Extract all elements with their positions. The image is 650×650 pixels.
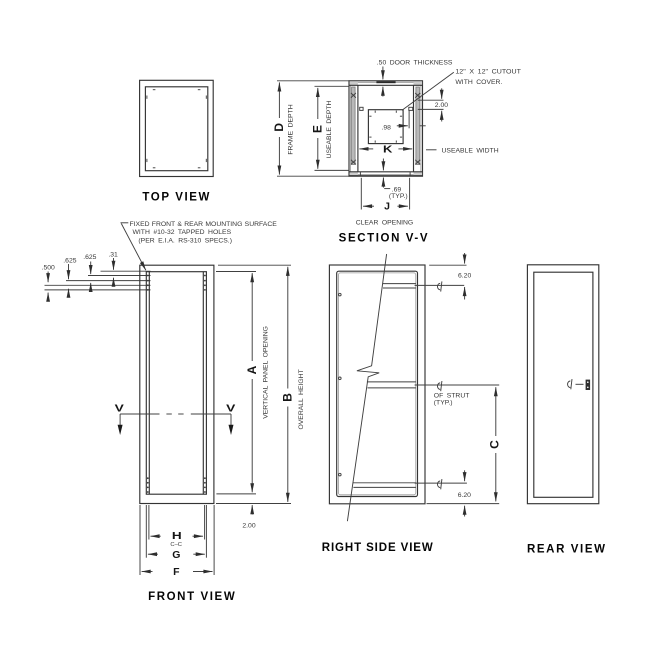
svg-text:H: H: [172, 530, 182, 542]
svg-text:B: B: [281, 393, 295, 402]
svg-text:USEABLE DEPTH: USEABLE DEPTH: [326, 100, 333, 158]
svg-text:V: V: [115, 402, 124, 414]
svg-text:D: D: [272, 123, 286, 132]
svg-text:.500: .500: [42, 264, 55, 271]
svg-text:SECTION V-V: SECTION V-V: [339, 232, 429, 244]
svg-text:2.00: 2.00: [435, 102, 448, 109]
svg-text:C–C: C–C: [170, 542, 182, 548]
svg-text:OVERALL HEIGHT: OVERALL HEIGHT: [298, 369, 305, 429]
svg-text:FIXED FRONT & REAR MOUNTING SU: FIXED FRONT & REAR MOUNTING SURFACE: [130, 221, 278, 228]
svg-text:TOP VIEW: TOP VIEW: [142, 192, 211, 204]
svg-text:.625: .625: [63, 257, 76, 264]
svg-text:(PER E.I.A. RS-310 SPECS.): (PER E.I.A. RS-310 SPECS.): [138, 237, 232, 244]
svg-text:C: C: [487, 440, 501, 449]
svg-text:.98: .98: [382, 125, 392, 132]
svg-text:V: V: [226, 402, 235, 414]
svg-text:RIGHT SIDE VIEW: RIGHT SIDE VIEW: [322, 542, 434, 554]
svg-text:WITH #10-32 TAPPED HOLES: WITH #10-32 TAPPED HOLES: [133, 229, 232, 236]
svg-text:REAR VIEW: REAR VIEW: [527, 544, 607, 556]
svg-text:6.20: 6.20: [458, 272, 471, 279]
svg-text:12" X 12" CUTOUT: 12" X 12" CUTOUT: [455, 69, 521, 76]
svg-text:VERTICAL PANEL OPENING: VERTICAL PANEL OPENING: [263, 326, 270, 419]
svg-text:USEABLE WIDTH: USEABLE WIDTH: [442, 148, 499, 155]
svg-text:2.00: 2.00: [242, 523, 255, 530]
svg-text:K: K: [383, 144, 393, 156]
svg-text:(TYP.): (TYP.): [389, 193, 408, 200]
svg-text:.31: .31: [108, 251, 118, 258]
svg-text:FRAME DEPTH: FRAME DEPTH: [288, 104, 295, 154]
svg-text:FRONT VIEW: FRONT VIEW: [148, 591, 236, 603]
svg-text:WITH COVER.: WITH COVER.: [455, 79, 502, 86]
svg-text:E: E: [310, 125, 324, 133]
svg-text:6.20: 6.20: [458, 492, 471, 499]
svg-text:(TYP.): (TYP.): [434, 399, 453, 406]
svg-text:.625: .625: [83, 254, 96, 261]
svg-text:F: F: [173, 566, 180, 578]
svg-text:G: G: [172, 549, 180, 561]
svg-text:.50 DOOR THICKNESS: .50 DOOR THICKNESS: [377, 59, 453, 66]
svg-text:J: J: [384, 201, 390, 213]
svg-text:A: A: [245, 365, 259, 374]
svg-text:CLEAR OPENING: CLEAR OPENING: [356, 220, 414, 227]
